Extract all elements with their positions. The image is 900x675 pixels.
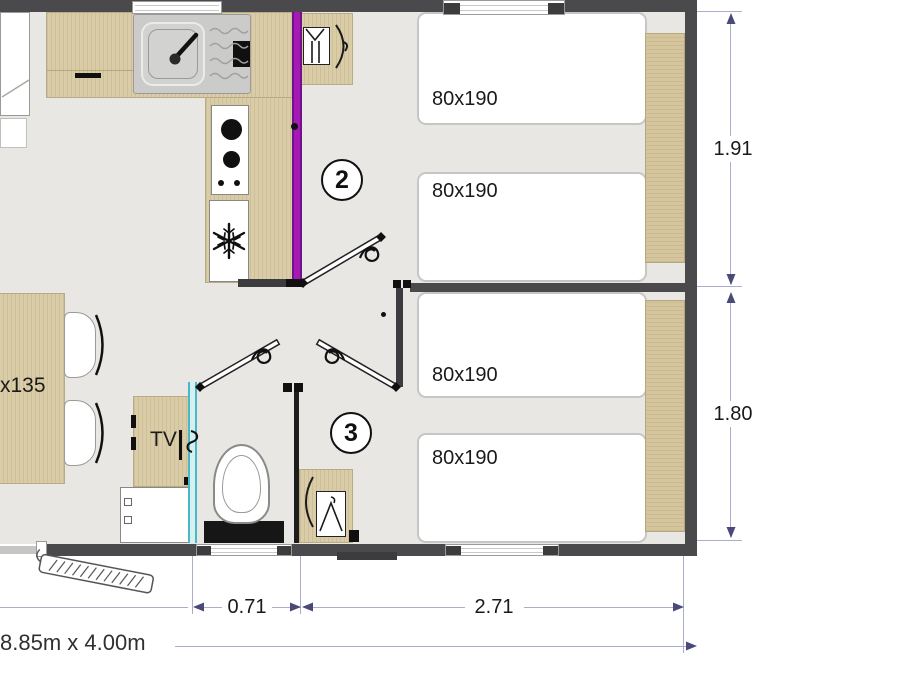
window-glass-line — [199, 548, 289, 549]
chair — [64, 312, 96, 378]
window-kitchen — [132, 1, 222, 14]
stove-knob — [218, 180, 224, 186]
headboard-room3 — [645, 300, 685, 532]
window-frame-cap — [446, 546, 461, 555]
dimension-line-right-bottom — [730, 294, 731, 401]
tv-screen-bar — [179, 430, 182, 460]
bedroom-divider-wall — [410, 283, 685, 292]
bed-single: 80x190 — [417, 172, 647, 282]
corner-cabinet — [0, 12, 30, 116]
dimension-line-bottom — [196, 607, 222, 608]
dimension-label-bottom-right: 2.71 — [466, 596, 522, 618]
extension-line — [192, 556, 193, 614]
bed-size-label: 80x190 — [432, 364, 498, 386]
extension-line — [697, 11, 742, 12]
window-frame-cap — [548, 3, 564, 14]
tv-cabinet — [120, 487, 194, 543]
dimension-line-bottom — [272, 607, 300, 608]
kitchen-counter-seam — [46, 70, 133, 71]
sink-bowl-inner — [148, 29, 198, 79]
window-glass-line — [448, 552, 556, 553]
window-glass-line — [448, 548, 556, 549]
wardrobe-room2-panel — [303, 27, 330, 65]
window-bedroom3 — [445, 544, 559, 556]
dimension-line-right-top — [730, 162, 731, 284]
tv-speaker — [131, 437, 136, 450]
counter-appliance — [233, 41, 250, 67]
wall-stud-dot — [291, 123, 298, 130]
partition-wall-purple — [292, 10, 302, 279]
wardrobe-room3-panel — [316, 491, 346, 537]
door-hinge — [393, 280, 401, 288]
stove-knob — [234, 180, 240, 186]
window-bathroom — [196, 544, 292, 556]
door-pivot — [294, 383, 303, 392]
purple-wall-base-cap — [286, 279, 304, 287]
dimension-line-bottom — [524, 607, 682, 608]
kitchen-end-panel — [238, 279, 288, 287]
burner-small — [223, 151, 240, 168]
tv-speaker — [131, 415, 136, 428]
door-hinge — [403, 280, 411, 288]
drawer-handle — [75, 73, 101, 78]
wall-stud-dot — [381, 312, 386, 317]
room-number-badge-3: 3 — [330, 412, 372, 454]
headboard-room2 — [645, 33, 685, 263]
toilet-base — [204, 521, 284, 543]
dimension-line-right-bottom — [730, 427, 731, 537]
window-frame-cap — [197, 546, 211, 555]
chair — [64, 400, 96, 466]
table-size-label: x135 — [0, 374, 46, 398]
dimension-label-bottom-left: 0.71 — [222, 596, 272, 618]
bed-size-label: 80x190 — [432, 88, 498, 110]
bed-size-label: 80x190 — [432, 180, 498, 202]
floor-plan: 80x190 80x190 80x190 80x190 2 3 x135 TV — [0, 0, 900, 675]
dimension-line-bottom — [0, 607, 188, 608]
dimension-label-right-bottom: 1.80 — [707, 403, 759, 425]
window-glass-line — [199, 552, 289, 553]
window-frame-cap — [277, 546, 291, 555]
cabinet-pull — [124, 516, 132, 524]
window-bedroom2 — [443, 0, 565, 15]
wardrobe-foot — [349, 530, 359, 542]
overall-dimension-line — [168, 646, 690, 647]
window-glass-line — [135, 5, 219, 6]
fridge — [209, 200, 249, 282]
bed-single: 80x190 — [417, 12, 647, 125]
cabinet-detail — [0, 118, 27, 148]
window-frame-cap — [444, 3, 460, 14]
bedroom3-stub-wall — [396, 288, 403, 387]
dimension-label-right-top: 1.91 — [707, 138, 759, 160]
extension-line — [683, 556, 684, 653]
window-frame-cap — [543, 546, 558, 555]
top-wall — [0, 0, 697, 12]
bed-single: 80x190 — [417, 292, 647, 398]
right-wall — [685, 0, 697, 556]
extension-line — [697, 286, 742, 287]
bed-single: 80x190 — [417, 433, 647, 543]
overall-size-label: 8.85m x 4.00m — [0, 630, 175, 656]
door-pivot — [283, 383, 292, 392]
tv-label: TV — [150, 428, 177, 452]
cabinet-pull — [124, 498, 132, 506]
room-number-badge-2: 2 — [321, 159, 363, 201]
wall-end-cap — [36, 541, 47, 557]
dimension-line-bottom — [305, 607, 465, 608]
exterior-step — [337, 552, 397, 560]
window-glass-line — [135, 10, 219, 11]
extension-line — [300, 556, 301, 614]
room3-number: 3 — [344, 419, 358, 448]
extension-line — [697, 540, 742, 541]
glass-partition — [188, 382, 197, 543]
room2-number: 2 — [335, 166, 349, 195]
burner-large — [221, 119, 242, 140]
entrance-threshold — [0, 546, 38, 554]
window-glass-line — [446, 5, 562, 6]
dimension-line-right-top — [730, 16, 731, 136]
window-glass-line — [446, 10, 562, 11]
toilet-seat — [222, 455, 261, 513]
bed-size-label: 80x190 — [432, 447, 498, 469]
